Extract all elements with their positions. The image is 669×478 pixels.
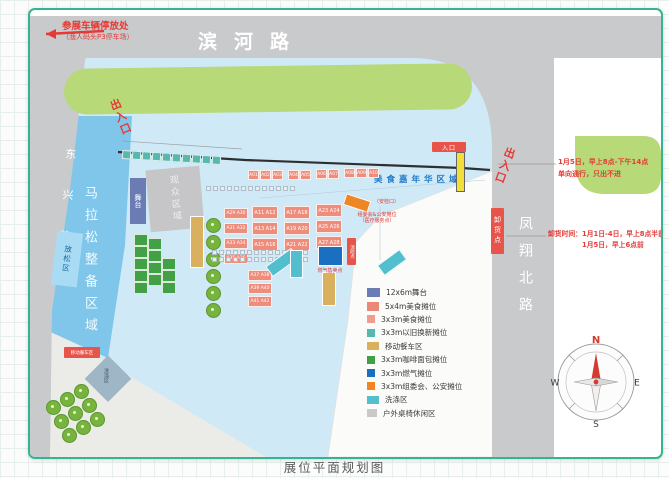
food-truck-icon (54, 414, 69, 429)
food-truck-tag-label: 移动餐车区 (71, 350, 94, 356)
stage-label: 舞台 (133, 194, 143, 208)
booth: A10 (368, 168, 379, 178)
compass-e: E (634, 379, 640, 389)
legend-swatch-leisure (367, 409, 377, 417)
fire-point-tag: 消防点 (347, 238, 356, 265)
booth: A11 A12 (252, 206, 278, 219)
coffee-booth (148, 250, 162, 262)
legend-label: 3x3m美食摊位 (381, 314, 432, 325)
compass-s: S (593, 420, 599, 428)
coffee-booth (162, 270, 176, 282)
legend-label: 洗涤区 (385, 394, 408, 405)
legend-label: 移动餐车区 (385, 341, 423, 352)
unloading-notice-line2: 1月5日，早上6点前 (582, 241, 663, 249)
a-booth-group: A06 A07 (316, 169, 339, 179)
food-truck-icon (82, 398, 97, 413)
coffee-booth (134, 282, 148, 294)
legend-item: 3x3m燃气摊位 (367, 366, 497, 379)
right-road-name: 凤翔北路 (515, 216, 535, 324)
legend-swatch-tradein (367, 329, 375, 337)
unloading-tag: 卸货点 (491, 208, 504, 254)
tradein-booth (182, 154, 192, 164)
tradein-booth (212, 155, 222, 165)
coffee-booth (162, 258, 176, 270)
security-note: （安检口） (374, 199, 399, 205)
legend-item: 3x3m美食摊位 (367, 313, 497, 326)
fire-point-label: 消防点 (349, 245, 355, 259)
booth: A06 (316, 169, 327, 179)
parking-note-line2: （渔人码头P3停车场） (62, 33, 134, 42)
committee-note: 组委会&公安摊位 （医疗服务点） (350, 212, 404, 225)
relax-zone-label: 放松区 (60, 244, 74, 274)
legend-label: 12x6m舞台 (386, 287, 427, 298)
tradein-booth (122, 150, 132, 160)
tree-icon (206, 286, 221, 301)
food-truck-strip (190, 216, 204, 268)
washing-booth (290, 250, 303, 278)
food-truck-icon (68, 406, 83, 421)
tradein-booth (142, 151, 152, 161)
green-median-top (64, 63, 473, 115)
food-truck-icon (46, 400, 61, 415)
food-truck-icon (62, 428, 77, 443)
food-truck-icon (90, 412, 105, 427)
top-road-name: 滨河路 (198, 27, 306, 54)
legend-label: 户外桌椅休闲区 (383, 408, 436, 419)
legend-swatch-food-5x4 (367, 302, 379, 311)
page-title: 展位平面规划图 (0, 457, 669, 476)
food-truck-tag: 移动餐车区 (64, 347, 100, 358)
plan-page: 滨河路 东兴路 凤翔北路 马拉松整备区域 放松区 美食嘉年华区域 舞台 观众区域… (0, 0, 669, 478)
booth: A17 A18 (284, 206, 310, 219)
booth: A39 A40 (248, 283, 272, 294)
legend-item: 12x6m舞台 (367, 286, 497, 299)
committee-note-line2: （医疗服务点） (350, 218, 404, 224)
booth: A19 A20 (284, 222, 310, 235)
booth: A03 (272, 170, 283, 180)
washing-diamond-label: 洗涤区 (103, 368, 110, 383)
legend: 12x6m舞台 5x4m美食摊位 3x3m美食摊位 3x3m以旧换新摊位 移动餐… (367, 286, 497, 420)
booth: A23 A24 (316, 204, 342, 217)
legend-swatch-foodtruck (367, 342, 379, 350)
stage: 舞台 (130, 178, 146, 224)
gas-booth (318, 246, 343, 266)
gas-point-label: 燃气售卖点 (306, 268, 354, 274)
tradein-booth (152, 152, 162, 162)
legend-item: 3x3m以旧换新摊位 (367, 326, 497, 339)
booth: A13 A14 (252, 222, 278, 235)
legend-swatch-committee (367, 382, 375, 390)
booth: A05 (300, 170, 311, 180)
tree-icon (206, 235, 221, 250)
a-booth-group: A01 A02 A03 (248, 170, 283, 180)
booth: A41 A42 (248, 296, 272, 307)
oneway-notice: 1月5日，早上8点-下午14点 单向通行，只出不进 (558, 158, 648, 179)
coffee-booth (148, 238, 162, 250)
booth: A31 A32 (224, 223, 248, 234)
legend-item: 移动餐车区 (367, 340, 497, 353)
carnival-area-label: 美食嘉年华区域 (374, 173, 462, 185)
coffee-booth (134, 246, 148, 258)
marathon-zone-label: 马拉松整备区域 (80, 186, 99, 340)
a-booth-group: A08 A09 A10 (344, 168, 379, 178)
booth: A07 (328, 169, 339, 179)
legend-label: 3x3m以旧换新摊位 (381, 327, 447, 338)
food-truck-strip (322, 272, 336, 306)
legend-swatch-washing (367, 396, 379, 404)
booth: A29 A30 (224, 208, 248, 219)
unloading-tag-label: 卸货点 (493, 216, 503, 246)
a-booth-group: A04 A05 (288, 170, 311, 180)
coffee-booth (148, 274, 162, 286)
legend-swatch-stage (367, 288, 380, 297)
compass-n: N (592, 336, 600, 346)
legend-item: 3x3m咖啡面包摊位 (367, 353, 497, 366)
legend-item: 3x3m组委会、公安摊位 (367, 380, 497, 393)
coffee-booth (134, 234, 148, 246)
legend-label: 3x3m组委会、公安摊位 (381, 381, 462, 392)
audience-area-label: 观众区域 (166, 175, 183, 224)
tradein-booth (192, 154, 202, 164)
tree-icon (206, 303, 221, 318)
coffee-booth (148, 262, 162, 274)
legend-label: 3x3m咖啡面包摊位 (381, 354, 447, 365)
coffee-booth (134, 270, 148, 282)
tree-icon (206, 269, 221, 284)
legend-swatch-coffee (367, 356, 375, 364)
booth: A33 A34 (224, 238, 248, 249)
gate-tag: 入口 (432, 142, 466, 152)
compass-w: W (551, 379, 560, 389)
booth: A25 A26 (316, 220, 342, 233)
tree-icon (206, 218, 221, 233)
legend-label: 5x4m美食摊位 (385, 301, 436, 312)
booth: A08 (344, 168, 355, 178)
parking-note-line1: 参展车辆停放处 (62, 21, 134, 33)
oneway-notice-line2: 单向通行，只出不进 (558, 170, 648, 179)
compass: N E S W (550, 336, 642, 428)
gate-tag-label: 入口 (442, 143, 456, 152)
legend-item: 户外桌椅休闲区 (367, 407, 497, 420)
food-truck-icon (74, 384, 89, 399)
booth: A09 (356, 168, 367, 178)
oneway-notice-line1: 1月5日，早上8点-下午14点 (558, 158, 648, 167)
outdoor-table-row (206, 186, 295, 191)
food-truck-icon (60, 392, 75, 407)
coffee-booth (134, 258, 148, 270)
coffee-booth (162, 282, 176, 294)
parking-note: 参展车辆停放处 （渔人码头P3停车场） (62, 21, 134, 42)
legend-item: 5x4m美食摊位 (367, 299, 497, 312)
gate-bar (456, 152, 465, 192)
unloading-notice: 卸货时间：1月1日-4日，早上8点半前 1月5日，早上6点前 (548, 230, 663, 250)
legend-swatch-gas (367, 369, 375, 377)
legend-item: 洗涤区 (367, 393, 497, 406)
tradein-booth (132, 151, 142, 161)
food-truck-icon (76, 420, 91, 435)
tradein-booth (162, 152, 172, 162)
legend-swatch-food-3x3 (367, 315, 375, 323)
legend-label: 3x3m燃气摊位 (381, 368, 432, 379)
unloading-notice-line1: 卸货时间：1月1日-4日，早上8点半前 (548, 230, 663, 238)
booth: A02 (260, 170, 271, 180)
booth: A01 (248, 170, 259, 180)
tradein-booth (172, 153, 182, 163)
booth: A04 (288, 170, 299, 180)
map-card: 滨河路 东兴路 凤翔北路 马拉松整备区域 放松区 美食嘉年华区域 舞台 观众区域… (28, 8, 663, 459)
tradein-booth (202, 155, 212, 165)
